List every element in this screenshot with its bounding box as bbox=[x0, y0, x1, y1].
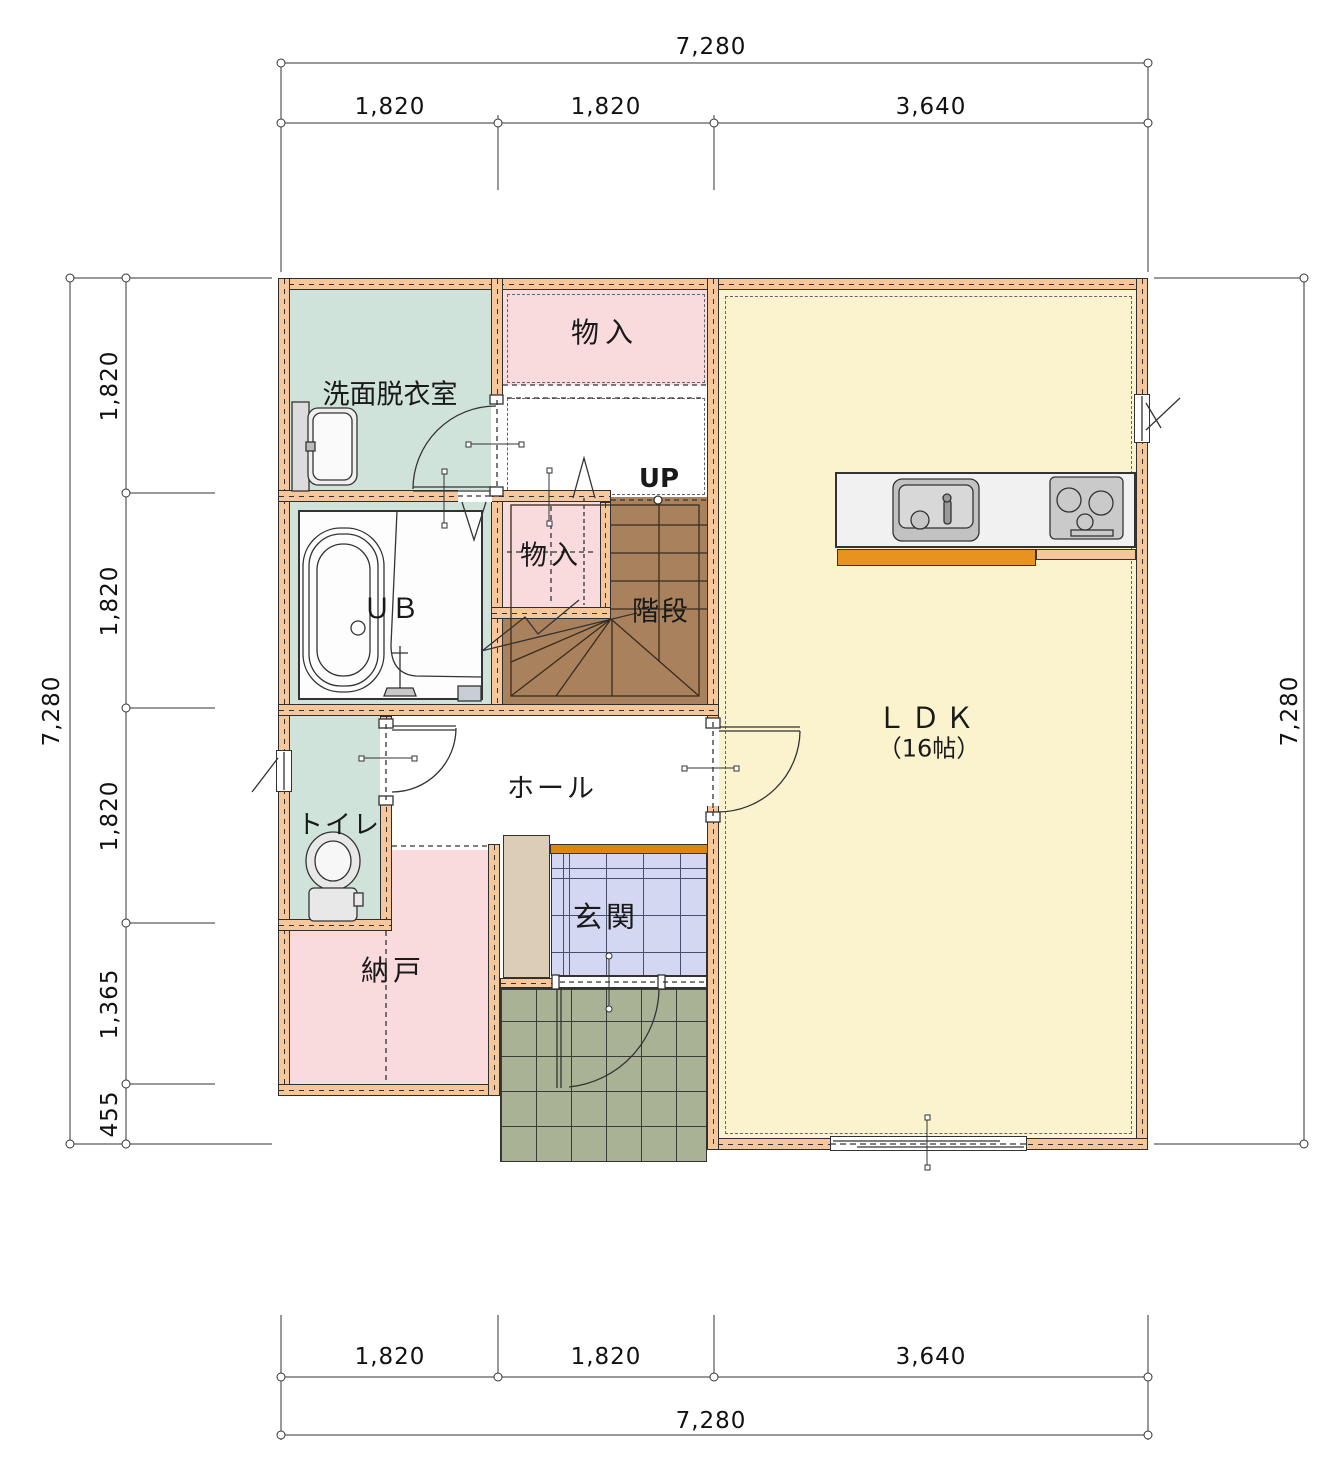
ldk-right-window bbox=[1134, 394, 1150, 443]
dim-bottom-total: 7,280 bbox=[676, 1408, 747, 1434]
wall-bottom-storage bbox=[278, 1084, 500, 1096]
dim-left-seg3: 1,820 bbox=[97, 781, 123, 852]
wall-toilet-bottom bbox=[278, 919, 392, 931]
opening-washroom-door bbox=[491, 404, 503, 487]
opening-ldk-door bbox=[707, 728, 719, 806]
dim-top-seg1: 1,820 bbox=[355, 94, 426, 120]
entrance-step-kamachi bbox=[550, 844, 710, 854]
floor-plan: 洗面脱衣室 物入 物入 ＵＢ 階段 UP ホール トイレ 納戸 玄関 ＬＤＫ （… bbox=[0, 0, 1336, 1472]
kitchen-cabinet-bar bbox=[837, 549, 1036, 566]
wall-hall-top bbox=[278, 704, 719, 716]
wall-left bbox=[278, 278, 290, 1096]
dim-top-seg3: 3,640 bbox=[896, 94, 967, 120]
wall-entrance-stub bbox=[500, 978, 553, 988]
shoe-cabinet bbox=[503, 835, 550, 978]
entrance-porch-tiles bbox=[500, 988, 707, 1162]
dim-left-seg4: 1,365 bbox=[97, 969, 123, 1040]
room-label-washroom: 洗面脱衣室 bbox=[323, 373, 458, 412]
room-label-hall: ホール bbox=[507, 767, 597, 806]
wall-storage-right bbox=[488, 844, 500, 1096]
dim-right-total: 7,280 bbox=[1277, 676, 1303, 747]
toilet-window bbox=[276, 750, 292, 792]
dim-left-seg1: 1,820 bbox=[97, 351, 123, 422]
room-label-storage-top: 物入 bbox=[571, 311, 639, 351]
room-label-ldk-size: （16帖） bbox=[878, 729, 981, 764]
wall-washroom-ub bbox=[278, 490, 611, 502]
stairs-winder bbox=[503, 619, 707, 704]
dim-left-total: 7,280 bbox=[39, 676, 65, 747]
dim-bottom-seg3: 3,640 bbox=[896, 1344, 967, 1370]
dim-top-seg2: 1,820 bbox=[571, 94, 642, 120]
kitchen-halfwall bbox=[1036, 549, 1136, 560]
entrance-side-opening bbox=[663, 976, 707, 988]
dim-left-seg2: 1,820 bbox=[97, 566, 123, 637]
wall-closet-bottom bbox=[491, 607, 611, 619]
opening-toilet-door bbox=[380, 728, 392, 796]
ldk-bottom-window bbox=[830, 1136, 1027, 1151]
room-label-storage-small: 物入 bbox=[520, 534, 582, 573]
dim-left-seg5: 455 bbox=[97, 1091, 123, 1138]
stairs-up-label: UP bbox=[639, 464, 679, 494]
dim-bottom-seg1: 1,820 bbox=[355, 1344, 426, 1370]
room-label-entrance: 玄関 bbox=[573, 894, 639, 936]
room-label-storage-room: 納戸 bbox=[361, 949, 425, 989]
entrance-threshold bbox=[553, 976, 663, 988]
wall-closet-right bbox=[600, 502, 611, 619]
room-label-stairs: 階段 bbox=[632, 590, 690, 629]
dim-bottom-seg2: 1,820 bbox=[571, 1344, 642, 1370]
kitchen-counter bbox=[835, 472, 1136, 548]
dim-top-total: 7,280 bbox=[676, 34, 747, 60]
opening-ub-door bbox=[458, 490, 492, 502]
room-label-unit-bath: ＵＢ bbox=[363, 587, 419, 627]
room-label-toilet: トイレ bbox=[297, 805, 381, 842]
